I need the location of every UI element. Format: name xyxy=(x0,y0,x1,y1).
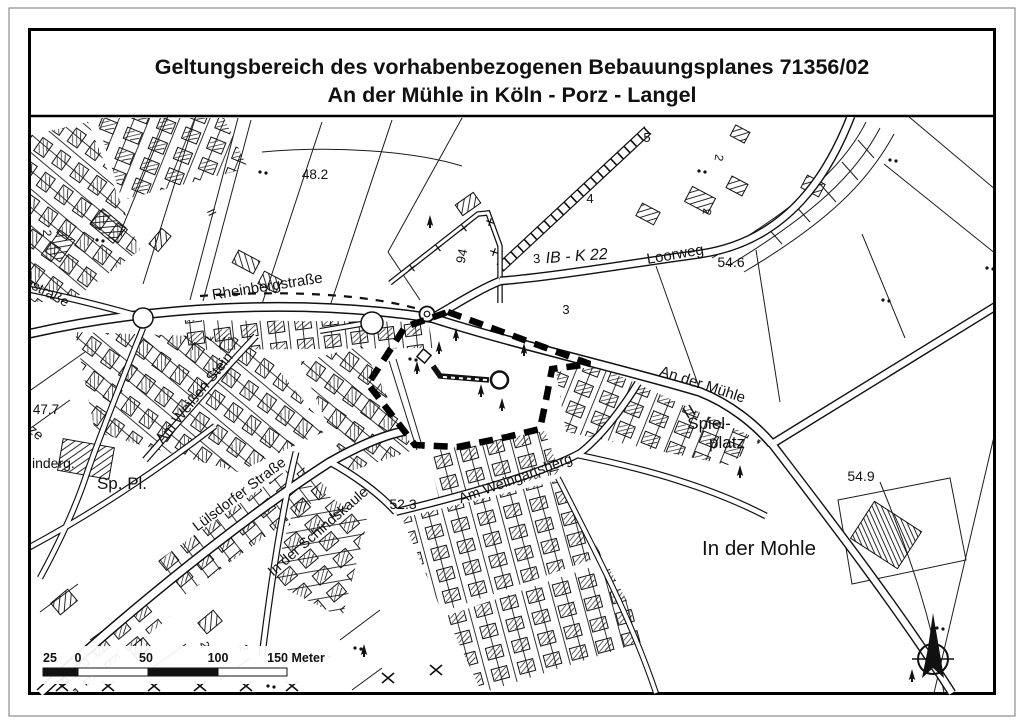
scale-segment xyxy=(218,668,287,676)
turning-circle-east xyxy=(361,312,383,334)
map-canvas: Geltungsbereich des vorhabenbezogenen Be… xyxy=(0,0,1024,724)
place-label-sp-pl: Sp. Pl. xyxy=(97,474,147,493)
elevation-54-6: 54.6 xyxy=(717,254,744,270)
north-arrow-label: N xyxy=(929,654,937,666)
parcel-number-4: 4 xyxy=(586,191,593,206)
parcel-number-3b: 3 xyxy=(562,302,569,317)
storey-count-2e: 2 xyxy=(40,230,54,237)
scale-segment xyxy=(78,668,148,676)
title-line-2: An der Mühle in Köln - Porz - Langel xyxy=(327,83,696,107)
elevation-47-7: 47.7 xyxy=(33,402,59,417)
scale-label-150m: 150 Meter xyxy=(267,651,325,665)
place-label-in-der-mohle: In der Mohle xyxy=(702,537,816,560)
scale-segment xyxy=(148,668,218,676)
title-line-1: Geltungsbereich des vorhabenbezogenen Be… xyxy=(155,55,870,79)
scale-label-50: 50 xyxy=(139,651,153,665)
scale-label-0: 0 xyxy=(75,651,82,665)
place-label-kindergarten: inderg. xyxy=(32,455,75,471)
scale-bar: 25 0 50 100 150 Meter xyxy=(36,646,338,684)
house-number-94: 94 xyxy=(453,247,471,264)
elevation-52-3: 52.3 xyxy=(389,496,416,512)
scale-label-100: 100 xyxy=(208,651,229,665)
windmill-circle xyxy=(491,372,508,389)
map-sheet: Geltungsbereich des vorhabenbezogenen Be… xyxy=(0,0,1024,724)
elevation-48-2: 48.2 xyxy=(302,167,328,182)
place-label-spielplatz-2: platz xyxy=(709,433,745,452)
scale-segment xyxy=(43,668,78,676)
elevation-54-9: 54.9 xyxy=(847,468,874,484)
turning-circle-west xyxy=(133,308,153,328)
place-label-spielplatz-1: Spiel- xyxy=(687,414,730,433)
scale-label-25: 25 xyxy=(43,651,57,665)
parcel-number-5: 5 xyxy=(643,130,650,145)
parcel-number-3a: 3 xyxy=(533,251,541,266)
